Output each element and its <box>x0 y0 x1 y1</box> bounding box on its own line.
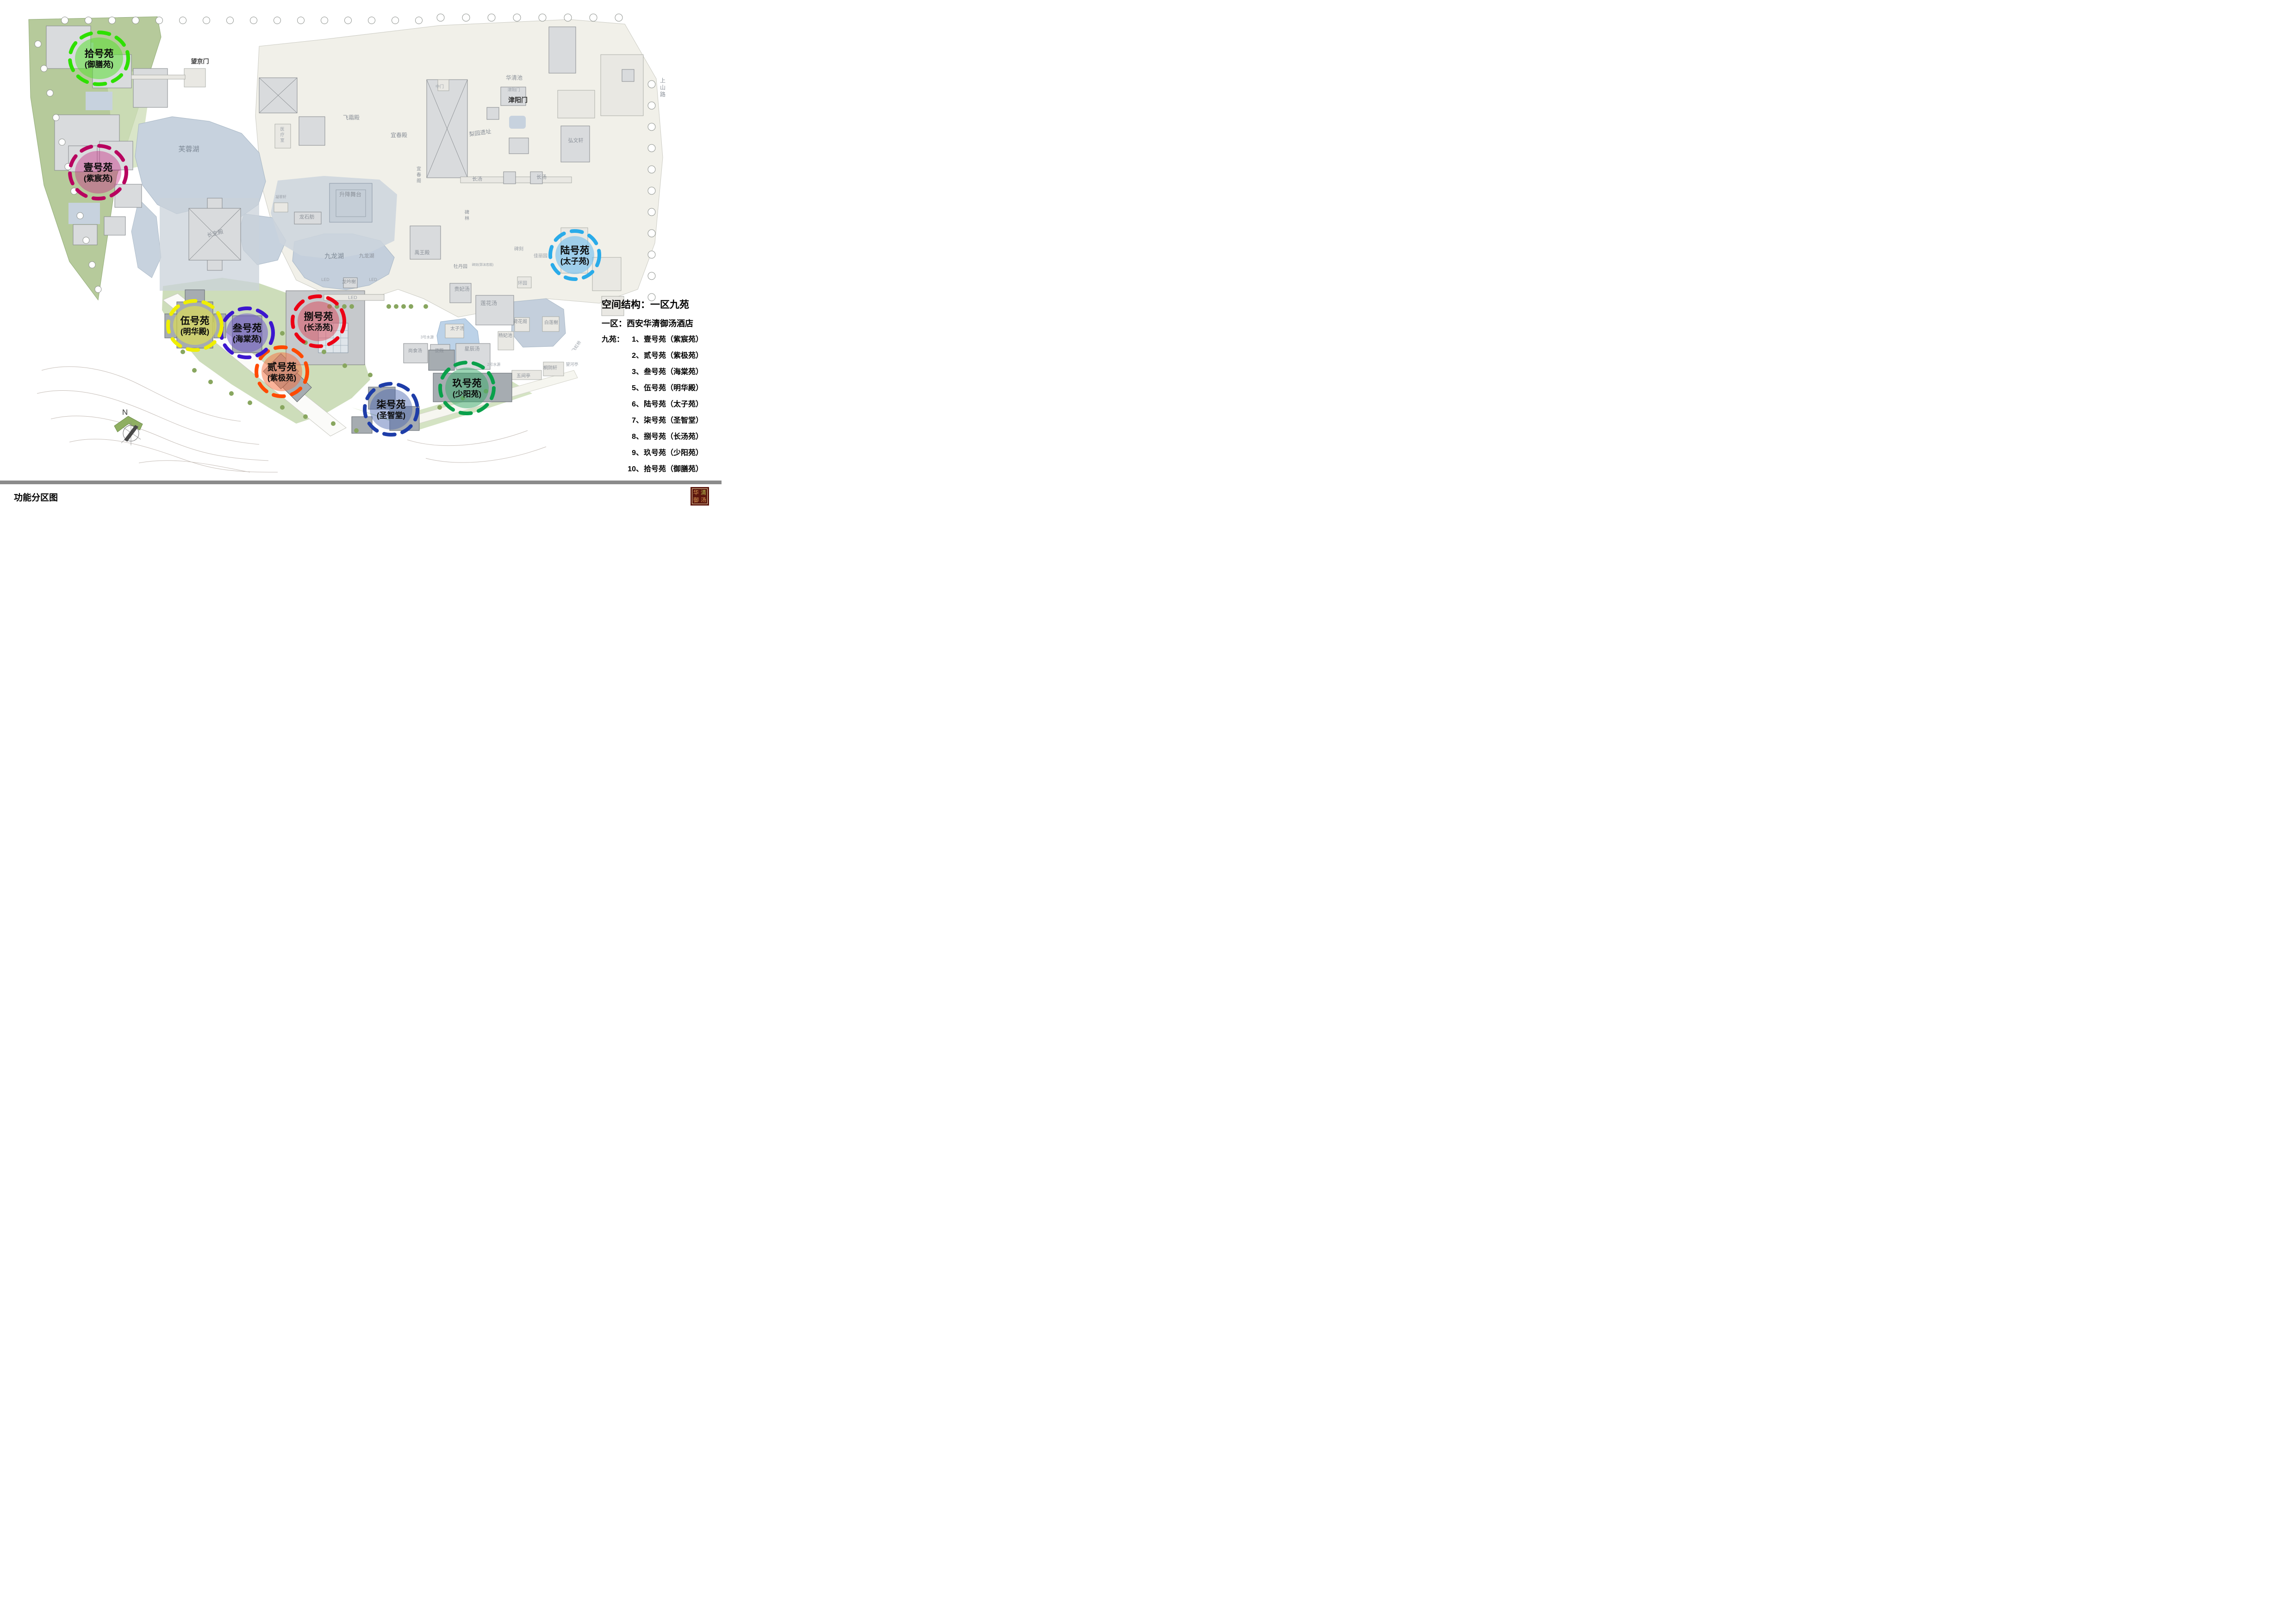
tree-icon <box>180 17 187 24</box>
tree-icon <box>462 14 470 21</box>
tree-icon <box>488 14 495 21</box>
tree-icon <box>321 17 328 24</box>
tree-icon <box>180 350 185 354</box>
map-label: 上 <box>660 77 666 84</box>
map-label: 白莲榭 <box>544 319 558 325</box>
tree-icon <box>342 363 347 368</box>
zone-label-line2: (太子苑) <box>560 256 589 266</box>
map-label: 禹王殿 <box>415 250 430 256</box>
zone-label-line2: (长汤苑) <box>304 323 333 332</box>
map-label: 荷花阁 <box>513 319 527 325</box>
tree-icon <box>648 230 655 237</box>
legend-item: 9、玖号苑（少阳苑） <box>602 446 720 462</box>
map-label: 碑刻 <box>514 246 523 252</box>
map-label: 疗 <box>280 132 284 137</box>
map-label: 龙吟榭 <box>342 279 356 285</box>
map-label: 飞虹桥 <box>571 340 582 353</box>
tree-icon <box>41 65 47 72</box>
map-label: 山 <box>660 84 666 91</box>
map-label: 五间亭 <box>516 373 530 379</box>
zone-label-line1: 贰号苑 <box>268 362 297 373</box>
map-label: 龙石舫 <box>299 213 315 220</box>
tree-icon <box>342 304 347 309</box>
tree-icon <box>331 421 336 426</box>
map-label: 佳丽园 <box>534 253 548 259</box>
tree-icon <box>409 304 413 309</box>
tree-icon <box>392 17 399 24</box>
seal-char: 汤 <box>701 497 706 503</box>
map-label: 2号水源 <box>487 362 500 367</box>
map-label: 尚食汤 <box>408 348 422 354</box>
tree-icon <box>85 17 92 24</box>
legend-item: 10、拾号苑（御膳苑） <box>602 462 720 479</box>
zone-label-line1: 伍号苑 <box>180 315 210 326</box>
tree-icon <box>47 90 53 96</box>
tree-icon <box>564 14 572 21</box>
tree-icon <box>274 17 281 24</box>
tree-icon <box>280 405 285 410</box>
map-label: 路 <box>660 91 666 98</box>
tree-icon <box>648 166 655 173</box>
map-label: LED <box>369 277 377 282</box>
tree-icon <box>423 304 428 309</box>
tree-icon <box>345 17 352 24</box>
tree-icon <box>203 17 210 24</box>
compass: N <box>114 408 143 445</box>
legend-title: 空间结构：一区九苑 <box>602 297 720 311</box>
zone-7: 柒号苑(圣智堂) <box>365 384 417 435</box>
tree-icon <box>53 114 59 121</box>
legend-item: 3、叁号苑（海棠苑） <box>602 365 720 381</box>
zone-label-line1: 陆号苑 <box>560 245 590 256</box>
map-label: 3号水源 <box>421 335 434 339</box>
map-label: 莲花汤 <box>480 300 497 306</box>
zone-label-line1: 叁号苑 <box>232 323 262 334</box>
compass-arrow-icon <box>114 416 143 432</box>
tree-icon <box>590 14 597 21</box>
tree-icon <box>349 304 354 309</box>
legend-item: 2、贰号苑（紫极苑） <box>602 349 720 365</box>
tree-icon <box>437 14 444 21</box>
map-label: 望京门 <box>191 58 209 65</box>
map-label: 便殿 <box>435 348 444 354</box>
tree-icon <box>62 17 68 24</box>
map-label: 环园 <box>518 281 527 286</box>
zone-3: 叁号苑(海棠苑) <box>221 308 273 357</box>
tree-icon <box>298 17 305 24</box>
zone-label-line2: (明华殿) <box>180 327 209 336</box>
tree-icon <box>59 139 65 145</box>
tree-icon <box>250 17 257 24</box>
map-label: 碑 <box>465 209 469 215</box>
tree-icon <box>648 187 655 194</box>
map-label: 九龙湖 <box>324 252 344 260</box>
map-label: 林 <box>465 215 469 221</box>
tree-icon <box>539 14 546 21</box>
site-plan-page: 壹号苑(紫宸苑)贰号苑(紫极苑)叁号苑(海棠苑)伍号苑(明华殿)陆号苑(太子苑)… <box>0 0 722 510</box>
tree-icon <box>322 350 326 354</box>
tree-icon <box>280 331 285 336</box>
map-label: 室 <box>280 137 284 143</box>
zone-label-line2: (紫宸苑) <box>84 174 112 183</box>
map-label: 医 <box>280 127 284 131</box>
map-label: 升降舞台 <box>339 191 361 198</box>
map-label: 牡丹园 <box>454 263 467 269</box>
tree-icon <box>89 262 95 268</box>
map-label: 飞霜殿 <box>343 114 360 121</box>
zone-label-line1: 柒号苑 <box>377 399 406 410</box>
zone-label-line2: (紫极苑) <box>268 373 296 382</box>
map-label: 津阳门 <box>507 87 520 92</box>
map-label: 华清池 <box>506 75 523 81</box>
tree-icon <box>648 81 655 88</box>
zone-label-line1: 壹号苑 <box>84 162 113 173</box>
hotel-seal: 华清御汤 <box>691 487 709 506</box>
zone-label-line1: 玖号苑 <box>453 378 482 389</box>
tree-icon <box>615 14 622 21</box>
map-label: 碑刻(郭沫若题) <box>472 262 494 267</box>
tree-icon <box>95 286 101 293</box>
tree-icon <box>416 17 423 24</box>
tree-icon <box>83 237 89 244</box>
tree-icon <box>648 208 655 216</box>
tree-icon <box>132 17 139 24</box>
tree-icon <box>227 17 234 24</box>
legend-panel: 空间结构：一区九苑 一区：西安华清御汤酒店 九苑：1、壹号苑（紫宸苑）2、贰号苑… <box>602 297 720 479</box>
zone-8: 捌号苑(长汤苑) <box>292 296 344 346</box>
tree-icon <box>248 400 252 405</box>
legend-list: 九苑：1、壹号苑（紫宸苑）2、贰号苑（紫极苑）3、叁号苑（海棠苑）5、伍号苑（明… <box>602 333 720 479</box>
hotel-seal-calligraphy: 华清御汤 <box>692 488 708 504</box>
tree-icon <box>77 212 83 219</box>
tree-icon <box>35 41 41 47</box>
seal-char: 清 <box>701 490 706 496</box>
tree-icon <box>109 17 116 24</box>
tree-icon <box>648 102 655 109</box>
tree-icon <box>394 304 398 309</box>
tree-icon <box>648 251 655 258</box>
tree-icon <box>437 405 442 410</box>
legend-item: 8、捌号苑（长汤苑） <box>602 430 720 446</box>
zone-label-line2: (海棠苑) <box>233 334 261 344</box>
tree-icon <box>303 414 308 419</box>
map-label: 春 <box>417 172 421 178</box>
map-label: LED <box>348 295 357 300</box>
tree-icon <box>513 14 521 21</box>
map-label: 宜春殿 <box>391 131 407 138</box>
tree-icon <box>368 17 375 24</box>
map-label: 宜 <box>417 166 421 172</box>
map-label: 望河亭 <box>566 362 578 367</box>
map-label: LED <box>321 277 330 282</box>
tree-icon <box>192 368 197 373</box>
tree-icon <box>648 272 655 280</box>
map-label: 太子汤 <box>450 325 464 331</box>
tree-icon <box>229 391 234 396</box>
map-label: 弘文轩 <box>568 137 584 144</box>
tree-icon <box>401 304 406 309</box>
map-label: 阁 <box>417 178 421 184</box>
zone-label-line2: (少阳苑) <box>453 389 481 399</box>
legend-item: 6、陆号苑（太子苑） <box>602 398 720 414</box>
zone-label-line1: 拾号苑 <box>85 48 114 59</box>
tree-icon <box>648 123 655 131</box>
zone-label-line1: 捌号苑 <box>304 311 333 322</box>
legend-item: 5、伍号苑（明华殿） <box>602 381 720 398</box>
tree-icon <box>368 373 373 377</box>
tree-icon <box>386 304 391 309</box>
map-label: 星辰汤 <box>465 345 480 352</box>
map-label: 长汤 <box>536 174 547 180</box>
legend-district-line: 一区：西安华清御汤酒店 <box>602 317 720 329</box>
seal-char: 华 <box>693 490 699 496</box>
map-label: 中门 <box>436 84 444 89</box>
seal-char: 御 <box>693 497 699 503</box>
map-label: 长汤 <box>472 175 482 182</box>
map-label: 凝翠轩 <box>275 194 286 199</box>
legend-item: 九苑：1、壹号苑（紫宸苑） <box>602 333 720 349</box>
tree-icon <box>156 17 163 24</box>
page-title: 功能分区图 <box>14 491 58 503</box>
zone-9: 玖号苑(少阳苑) <box>440 362 494 413</box>
legend-item: 7、柒号苑（圣智堂） <box>602 414 720 430</box>
compass-n-label: N <box>122 408 128 417</box>
map-label: 芙蓉湖 <box>178 145 199 153</box>
map-label: 桐阴轩 <box>543 365 557 371</box>
zone-6: 陆号苑(太子苑) <box>550 231 599 279</box>
tree-icon <box>648 144 655 152</box>
tree-icon <box>208 380 213 384</box>
map-label: 津阳门 <box>508 96 528 104</box>
zone-label-line2: (御膳苑) <box>85 60 113 69</box>
tree-icon <box>354 428 359 433</box>
zone-2: 贰号苑(紫极苑) <box>256 347 307 396</box>
map-label: 杨妃池 <box>498 332 512 338</box>
zone-5: 伍号苑(明华殿) <box>168 301 222 350</box>
map-label: 九龙湖 <box>359 253 374 259</box>
zone-label-line2: (圣智堂) <box>377 411 405 420</box>
map-label: 贵妃汤 <box>454 286 470 292</box>
footer-divider <box>0 481 722 484</box>
